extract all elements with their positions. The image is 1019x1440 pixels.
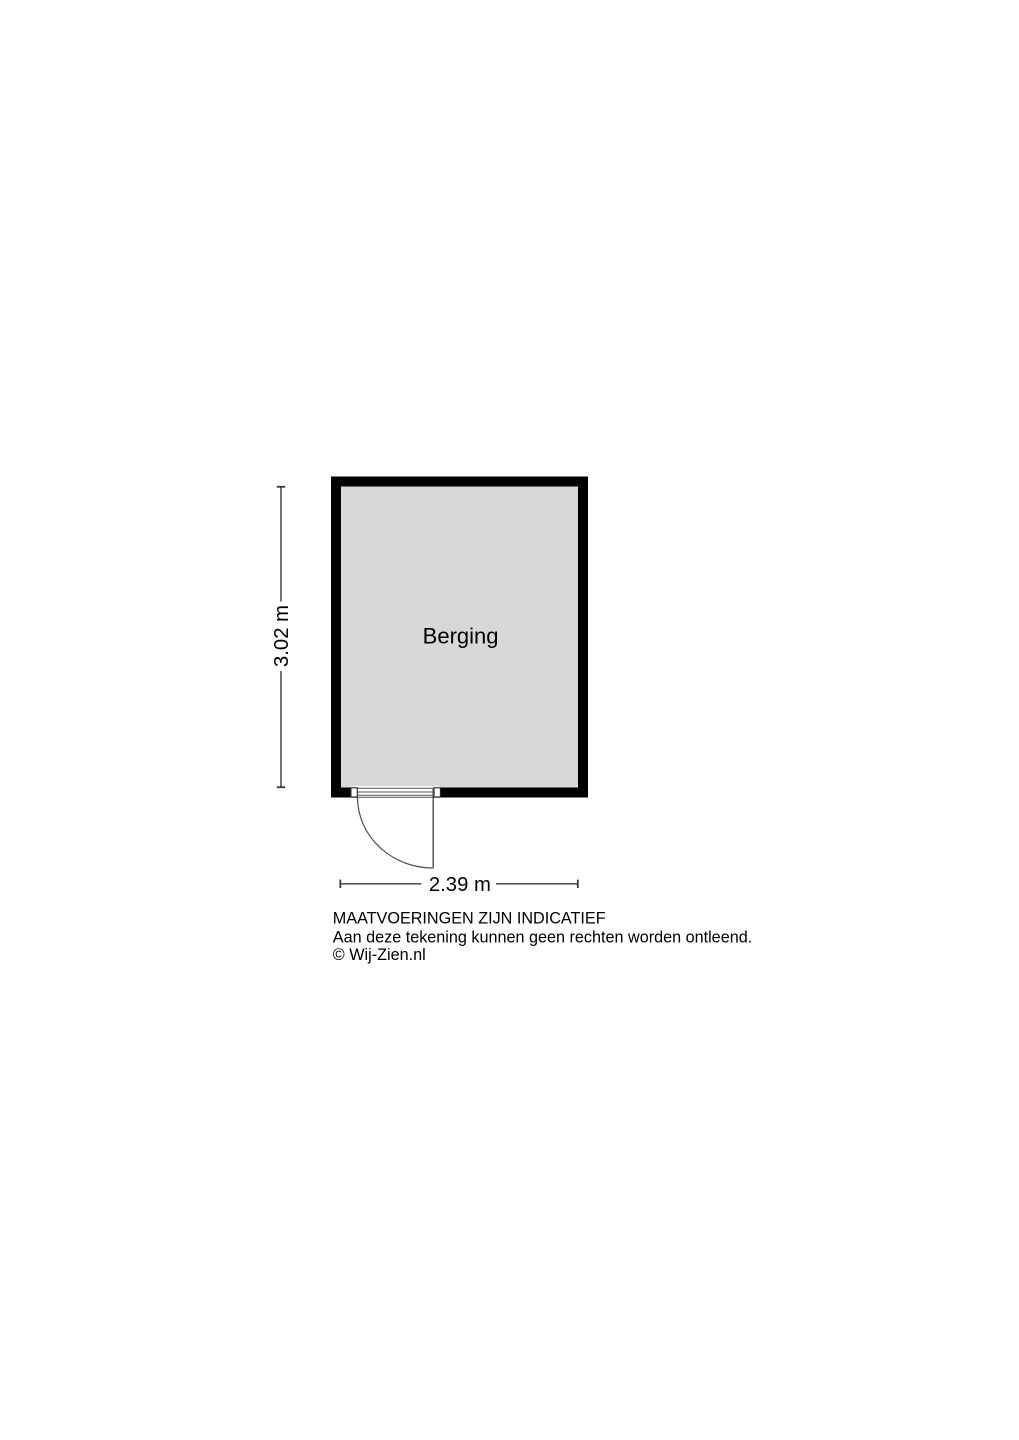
svg-text:Aan deze tekening kunnen geen: Aan deze tekening kunnen geen rechten wo… bbox=[333, 929, 752, 947]
svg-text:3.02 m: 3.02 m bbox=[271, 605, 293, 667]
svg-text:Berging: Berging bbox=[423, 624, 499, 649]
svg-text:© Wij-Zien.nl: © Wij-Zien.nl bbox=[333, 946, 426, 964]
svg-text:2.39 m: 2.39 m bbox=[429, 874, 491, 896]
svg-text:MAATVOERINGEN ZIJN INDICATIEF: MAATVOERINGEN ZIJN INDICATIEF bbox=[333, 910, 606, 928]
